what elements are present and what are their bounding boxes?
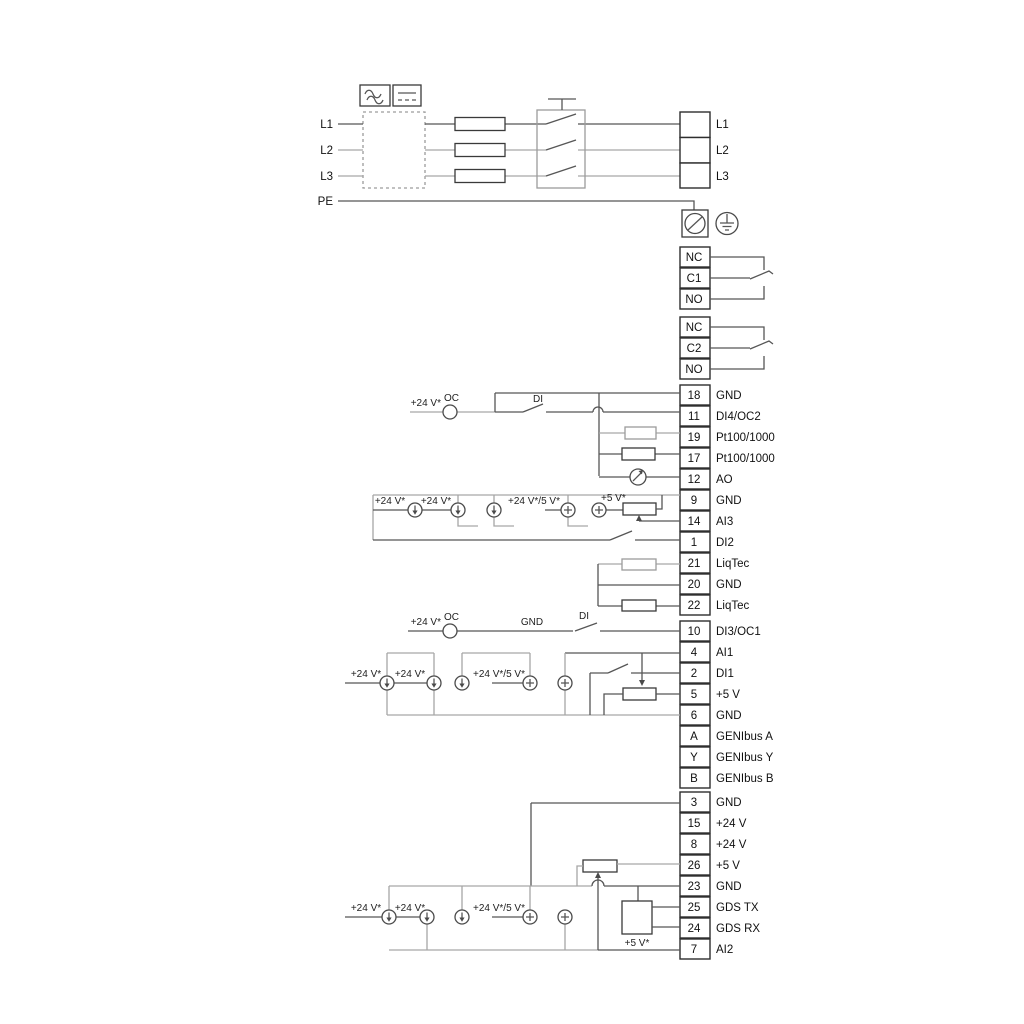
terminal-label: AO — [716, 474, 733, 486]
voltage-source-icon — [558, 676, 572, 690]
terminal-label: DI1 — [716, 668, 734, 680]
plus24v-label: +24 V* — [421, 496, 451, 507]
terminal-number: 2 — [691, 668, 697, 680]
gds-sensor-box — [622, 901, 652, 934]
terminal-number: 9 — [691, 495, 697, 507]
resistor-icon — [622, 600, 656, 611]
di-label: DI — [579, 611, 589, 622]
terminal-number: 15 — [688, 818, 701, 830]
terminal-number: 1 — [691, 537, 697, 549]
relay-terminal-label: NC — [686, 252, 703, 264]
plus24v-label: +24 V* — [395, 903, 425, 914]
relay-terminal-label: C1 — [687, 273, 702, 285]
terminal-number: A — [690, 731, 698, 743]
terminal-label: GND — [716, 390, 742, 402]
terminal-label: GENIbus Y — [716, 752, 774, 764]
current-source-icon — [408, 503, 422, 517]
plus24v-5v-label: +24 V*/5 V* — [473, 903, 525, 914]
terminal-number: 6 — [691, 710, 697, 722]
current-source-icon — [455, 910, 469, 924]
relay-terminal-label: NO — [685, 294, 702, 306]
voltage-source-icon — [558, 910, 572, 924]
terminal-label: Pt100/1000 — [716, 453, 775, 465]
current-source-icon — [382, 910, 396, 924]
terminal-label: GND — [716, 579, 742, 591]
terminal-label: LiqTec — [716, 558, 749, 570]
resistor-icon — [622, 448, 655, 460]
open-collector-icon — [443, 405, 457, 419]
terminal-number: 8 — [691, 839, 697, 851]
terminal-number: 26 — [688, 860, 701, 872]
terminal-label: +24 V — [716, 839, 747, 851]
current-source-icon — [455, 676, 469, 690]
gnd-label: GND — [521, 617, 543, 628]
terminal-label: GND — [716, 710, 742, 722]
power-out-label: L1 — [716, 119, 729, 131]
terminal-number: 14 — [688, 516, 701, 528]
plus24v-label: +24 V* — [411, 398, 441, 409]
fuse-icon — [455, 144, 505, 157]
terminal-number: 7 — [691, 944, 697, 956]
terminal-number: 3 — [691, 797, 697, 809]
terminal-number: 23 — [688, 881, 701, 893]
ac-symbol-box — [360, 85, 390, 106]
voltage-source-icon — [561, 503, 575, 517]
terminal-label: +5 V — [716, 860, 740, 872]
plus24v-5v-label: +24 V*/5 V* — [473, 669, 525, 680]
plus24v-label: +24 V* — [411, 617, 441, 628]
fuse-icon — [455, 118, 505, 131]
current-source-icon — [451, 503, 465, 517]
terminal-label: GDS RX — [716, 923, 760, 935]
dc-symbol-box — [393, 85, 421, 106]
current-source-icon — [420, 910, 434, 924]
meter-icon — [630, 469, 646, 485]
power-in-label: L3 — [320, 171, 333, 183]
potentiometer-icon — [623, 503, 656, 515]
terminal-label: Pt100/1000 — [716, 432, 775, 444]
terminal-number: Y — [690, 752, 698, 764]
voltage-source-icon — [523, 676, 537, 690]
fuse-icon — [455, 170, 505, 183]
terminal-number: 4 — [691, 647, 698, 659]
wiring-diagram: L1 L2 L3 PE L1 L2 L3 — [0, 0, 1024, 1024]
terminal-number: 10 — [688, 626, 701, 638]
terminal-cell — [680, 163, 710, 188]
oc-label: OC — [444, 393, 459, 404]
relay-terminal-label: NO — [685, 364, 702, 376]
terminal-label: +24 V — [716, 818, 747, 830]
terminal-label: DI2 — [716, 537, 734, 549]
power-in-label: L2 — [320, 145, 333, 157]
background — [0, 0, 1024, 1024]
terminal-label: AI3 — [716, 516, 733, 528]
relay-terminal-label: C2 — [687, 343, 702, 355]
terminal-number: 19 — [688, 432, 701, 444]
voltage-source-icon — [523, 910, 537, 924]
current-source-icon — [427, 676, 441, 690]
plus5v-label: +5 V* — [625, 938, 650, 949]
current-source-icon — [487, 503, 501, 517]
potentiometer-icon — [623, 688, 656, 700]
terminal-number: 12 — [688, 474, 701, 486]
terminal-label: GDS TX — [716, 902, 759, 914]
terminal-number: B — [690, 773, 698, 785]
plus24v-label: +24 V* — [351, 903, 381, 914]
open-collector-icon — [443, 624, 457, 638]
terminal-number: 25 — [688, 902, 701, 914]
terminal-label: GND — [716, 797, 742, 809]
terminal-label: GND — [716, 881, 742, 893]
terminal-number: 5 — [691, 689, 697, 701]
terminal-cell — [680, 138, 710, 164]
terminal-number: 17 — [688, 453, 701, 465]
voltage-source-icon — [592, 503, 606, 517]
potentiometer-icon — [583, 860, 617, 872]
terminal-number: 18 — [688, 390, 701, 402]
terminal-number: 11 — [688, 411, 700, 423]
relay-terminal-label: NC — [686, 322, 703, 334]
terminal-number: 20 — [688, 579, 701, 591]
terminal-cell — [680, 112, 710, 138]
power-in-label: PE — [318, 196, 334, 208]
oc-label: OC — [444, 612, 459, 623]
terminal-label: GND — [716, 495, 742, 507]
power-out-label: L2 — [716, 145, 729, 157]
power-in-label: L1 — [320, 119, 333, 131]
terminal-number: 21 — [688, 558, 701, 570]
terminal-label: DI4/OC2 — [716, 411, 761, 423]
current-source-icon — [380, 676, 394, 690]
plus24v-5v-label: +24 V*/5 V* — [508, 496, 560, 507]
power-out-label: L3 — [716, 171, 729, 183]
plus24v-label: +24 V* — [351, 669, 381, 680]
terminal-number: 24 — [688, 923, 701, 935]
di-label: DI — [533, 394, 543, 405]
terminal-label: +5 V — [716, 689, 740, 701]
plus24v-label: +24 V* — [395, 669, 425, 680]
terminal-label: LiqTec — [716, 600, 749, 612]
terminal-label: AI2 — [716, 944, 733, 956]
terminal-label: GENIbus A — [716, 731, 773, 743]
terminal-label: AI1 — [716, 647, 733, 659]
terminal-number: 22 — [688, 600, 701, 612]
terminal-label: GENIbus B — [716, 773, 774, 785]
plus24v-label: +24 V* — [375, 496, 405, 507]
terminal-label: DI3/OC1 — [716, 626, 761, 638]
plus5v-label: +5 V* — [601, 493, 626, 504]
